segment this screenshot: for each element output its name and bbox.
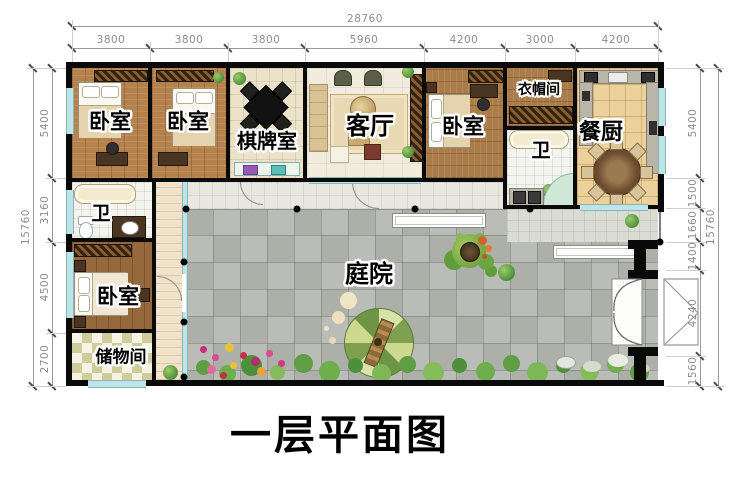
courtyard-walkway [186,182,507,210]
window-dining-south [580,204,648,211]
living-room-armchair-2 [364,70,382,86]
dim-top-seg-4: 5960 [350,34,379,46]
courtyard-parasol [344,308,412,376]
dim-top-seg-7: 4200 [602,34,631,46]
living-room-armchair-1 [334,70,352,86]
floor-plan-sheet: 卧室 卧室 棋牌室 客厅 卧室 衣帽间 卫 餐厨 卫 卧室 储物间 庭院 287… [0,0,750,477]
bedroom-3-chair [477,98,490,111]
column [181,374,188,381]
courtyard-label: 庭院 [345,262,393,286]
living-room-side-chair [330,146,349,163]
wall-top-row-bottom [66,178,507,182]
living-room-plant-2 [402,146,414,158]
wall-gate-upper-stub [628,240,658,249]
landscape-rocks [556,356,576,369]
courtyard-bench-right [553,245,639,259]
window-storage [88,380,146,388]
stepping-stones [340,292,357,309]
wall-living-b3 [422,68,426,178]
wall-b2-chess [226,68,230,178]
bathroom-2-label: 卫 [91,205,110,224]
bathroom-2-bathtub [74,184,136,204]
wall-b1-b2 [148,68,152,178]
bedroom-2-wardrobe [156,70,214,82]
window-dining-2 [658,136,666,174]
planting-bed [196,360,211,375]
dim-top-segment-line [72,48,658,49]
dining-chair [581,166,594,179]
dim-right-seg-4: 1400 [687,242,699,271]
bedroom-4-label: 卧室 [97,287,139,308]
living-room-label: 客厅 [346,114,394,138]
bathroom-1-label: 卫 [531,142,550,161]
flower-bed [200,346,207,353]
bedroom-3-nightstand [426,82,437,93]
column [181,319,188,326]
veranda-door-gap [182,274,186,312]
dim-right-seg-5: 4240 [687,299,699,328]
column [527,206,534,213]
dim-right-seg-1: 5400 [687,109,699,138]
bedroom-3-label: 卧室 [442,117,484,138]
dim-top-seg-1: 3800 [97,34,126,46]
dim-top-seg-3: 3800 [252,34,281,46]
bathroom-1-vanity [509,188,544,206]
dim-top-total: 28760 [347,13,383,25]
bedroom-1-wardrobe [94,70,148,82]
wall-bath1-dining [573,68,577,209]
courtyard-tree [448,230,492,274]
courtyard-bench-top [392,213,486,228]
side-paving-shrub [625,214,639,228]
veranda-shrub [163,365,178,380]
bathroom-2-toilet [79,222,93,239]
bedroom-2-desk [158,152,188,166]
bathroom-2-vanity [112,216,146,238]
column [412,206,419,213]
bedroom-1-chair [106,142,119,155]
dining-kitchen-label: 餐厨 [579,122,623,144]
dim-top-seg-6: 3000 [526,34,555,46]
wall-chess-living [303,68,307,178]
walkway-edge-line [186,209,507,210]
dim-right-total-line [718,68,719,386]
wall-left-wing-right [152,182,156,386]
column [294,206,301,213]
dim-left-seg-1: 5400 [39,109,51,138]
chess-room-label: 棋牌室 [237,131,297,151]
window-dining-1 [658,88,666,126]
cloakroom-label: 衣帽间 [518,83,560,97]
wall-right-thin [659,212,661,242]
dim-left-seg-4: 2700 [39,345,51,374]
wall-b3-cloak [503,68,507,209]
living-room-lounge-chair [364,144,381,160]
bedroom-4-nightstand-2 [74,316,86,328]
wall-bath2-b4 [66,238,156,242]
bedroom-4-nightstand-1 [74,260,86,272]
column [657,239,664,246]
dim-top-seg-5: 4200 [450,34,479,46]
bedroom-4-wardrobe [74,244,132,257]
dim-left-seg-3: 4500 [39,273,51,302]
column [181,259,188,266]
chess-room-plant [233,72,246,85]
column [183,206,190,213]
window-bathroom-2 [66,190,74,234]
cloakroom-dresser [548,70,572,82]
plan-title: 一层平面图 [230,401,450,461]
window-bedroom-4 [66,252,74,318]
dim-right-seg-3: 1660 [687,211,699,240]
bedroom-1-label: 卧室 [89,112,131,133]
bedroom-3-desk [470,84,498,98]
dim-left-seg-2: 3160 [39,196,51,225]
dining-chair [640,166,653,179]
storage-label: 储物间 [96,350,147,367]
wall-cloak-bath1 [507,126,573,130]
living-room-sofa [309,84,328,152]
bedroom-2-plant [213,72,224,83]
dim-right-segment-line [700,68,701,386]
dim-left-total-line [33,68,34,386]
courtyard-shrub [498,264,515,281]
window-bedroom-1 [66,88,74,134]
cloakroom-wardrobe [509,106,573,124]
wall-gate-lower [634,356,646,384]
wall-b4-storage [66,329,156,333]
dim-top-seg-2: 3800 [175,34,204,46]
dim-left-segment-line [52,68,53,386]
dim-right-seg-6: 1560 [687,357,699,386]
dim-left-total: 15760 [20,209,32,245]
dim-right-total: 15760 [705,209,717,245]
dim-top-total-line [72,26,658,27]
bedroom-2-label: 卧室 [167,112,209,133]
bedroom-3-wardrobe [468,70,504,83]
chess-room-bench [234,162,300,176]
dim-right-seg-2: 1500 [687,179,699,208]
